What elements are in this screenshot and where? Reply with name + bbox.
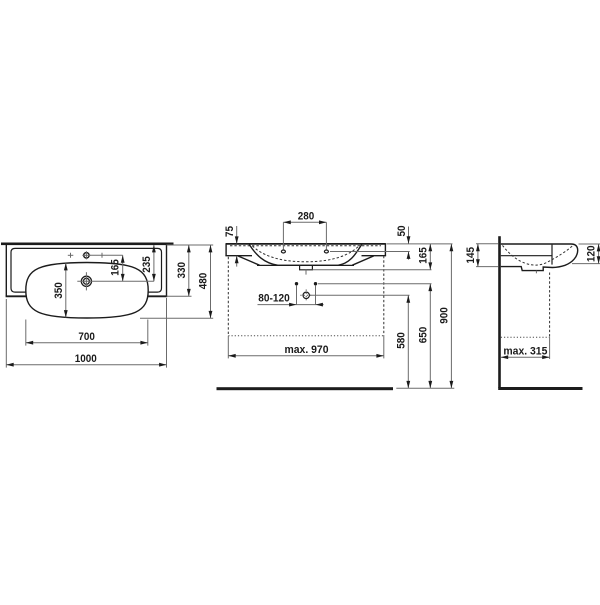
svg-text:350: 350 [53,282,65,299]
svg-text:900: 900 [438,307,450,324]
svg-text:max. 970: max. 970 [285,344,329,356]
svg-text:75: 75 [224,226,236,237]
svg-text:580: 580 [395,332,407,349]
svg-text:50: 50 [396,226,408,237]
svg-text:700: 700 [78,331,95,343]
svg-text:145: 145 [465,247,477,263]
svg-text:120: 120 [586,246,598,262]
svg-text:650: 650 [417,327,429,344]
svg-text:235: 235 [141,256,153,273]
svg-text:480: 480 [198,273,210,290]
svg-text:165: 165 [110,259,122,276]
svg-text:165: 165 [417,247,429,264]
svg-text:280: 280 [298,211,315,223]
svg-text:80-120: 80-120 [258,293,290,305]
svg-text:max. 315: max. 315 [503,345,547,357]
svg-text:1000: 1000 [75,353,97,365]
svg-text:330: 330 [176,262,188,279]
